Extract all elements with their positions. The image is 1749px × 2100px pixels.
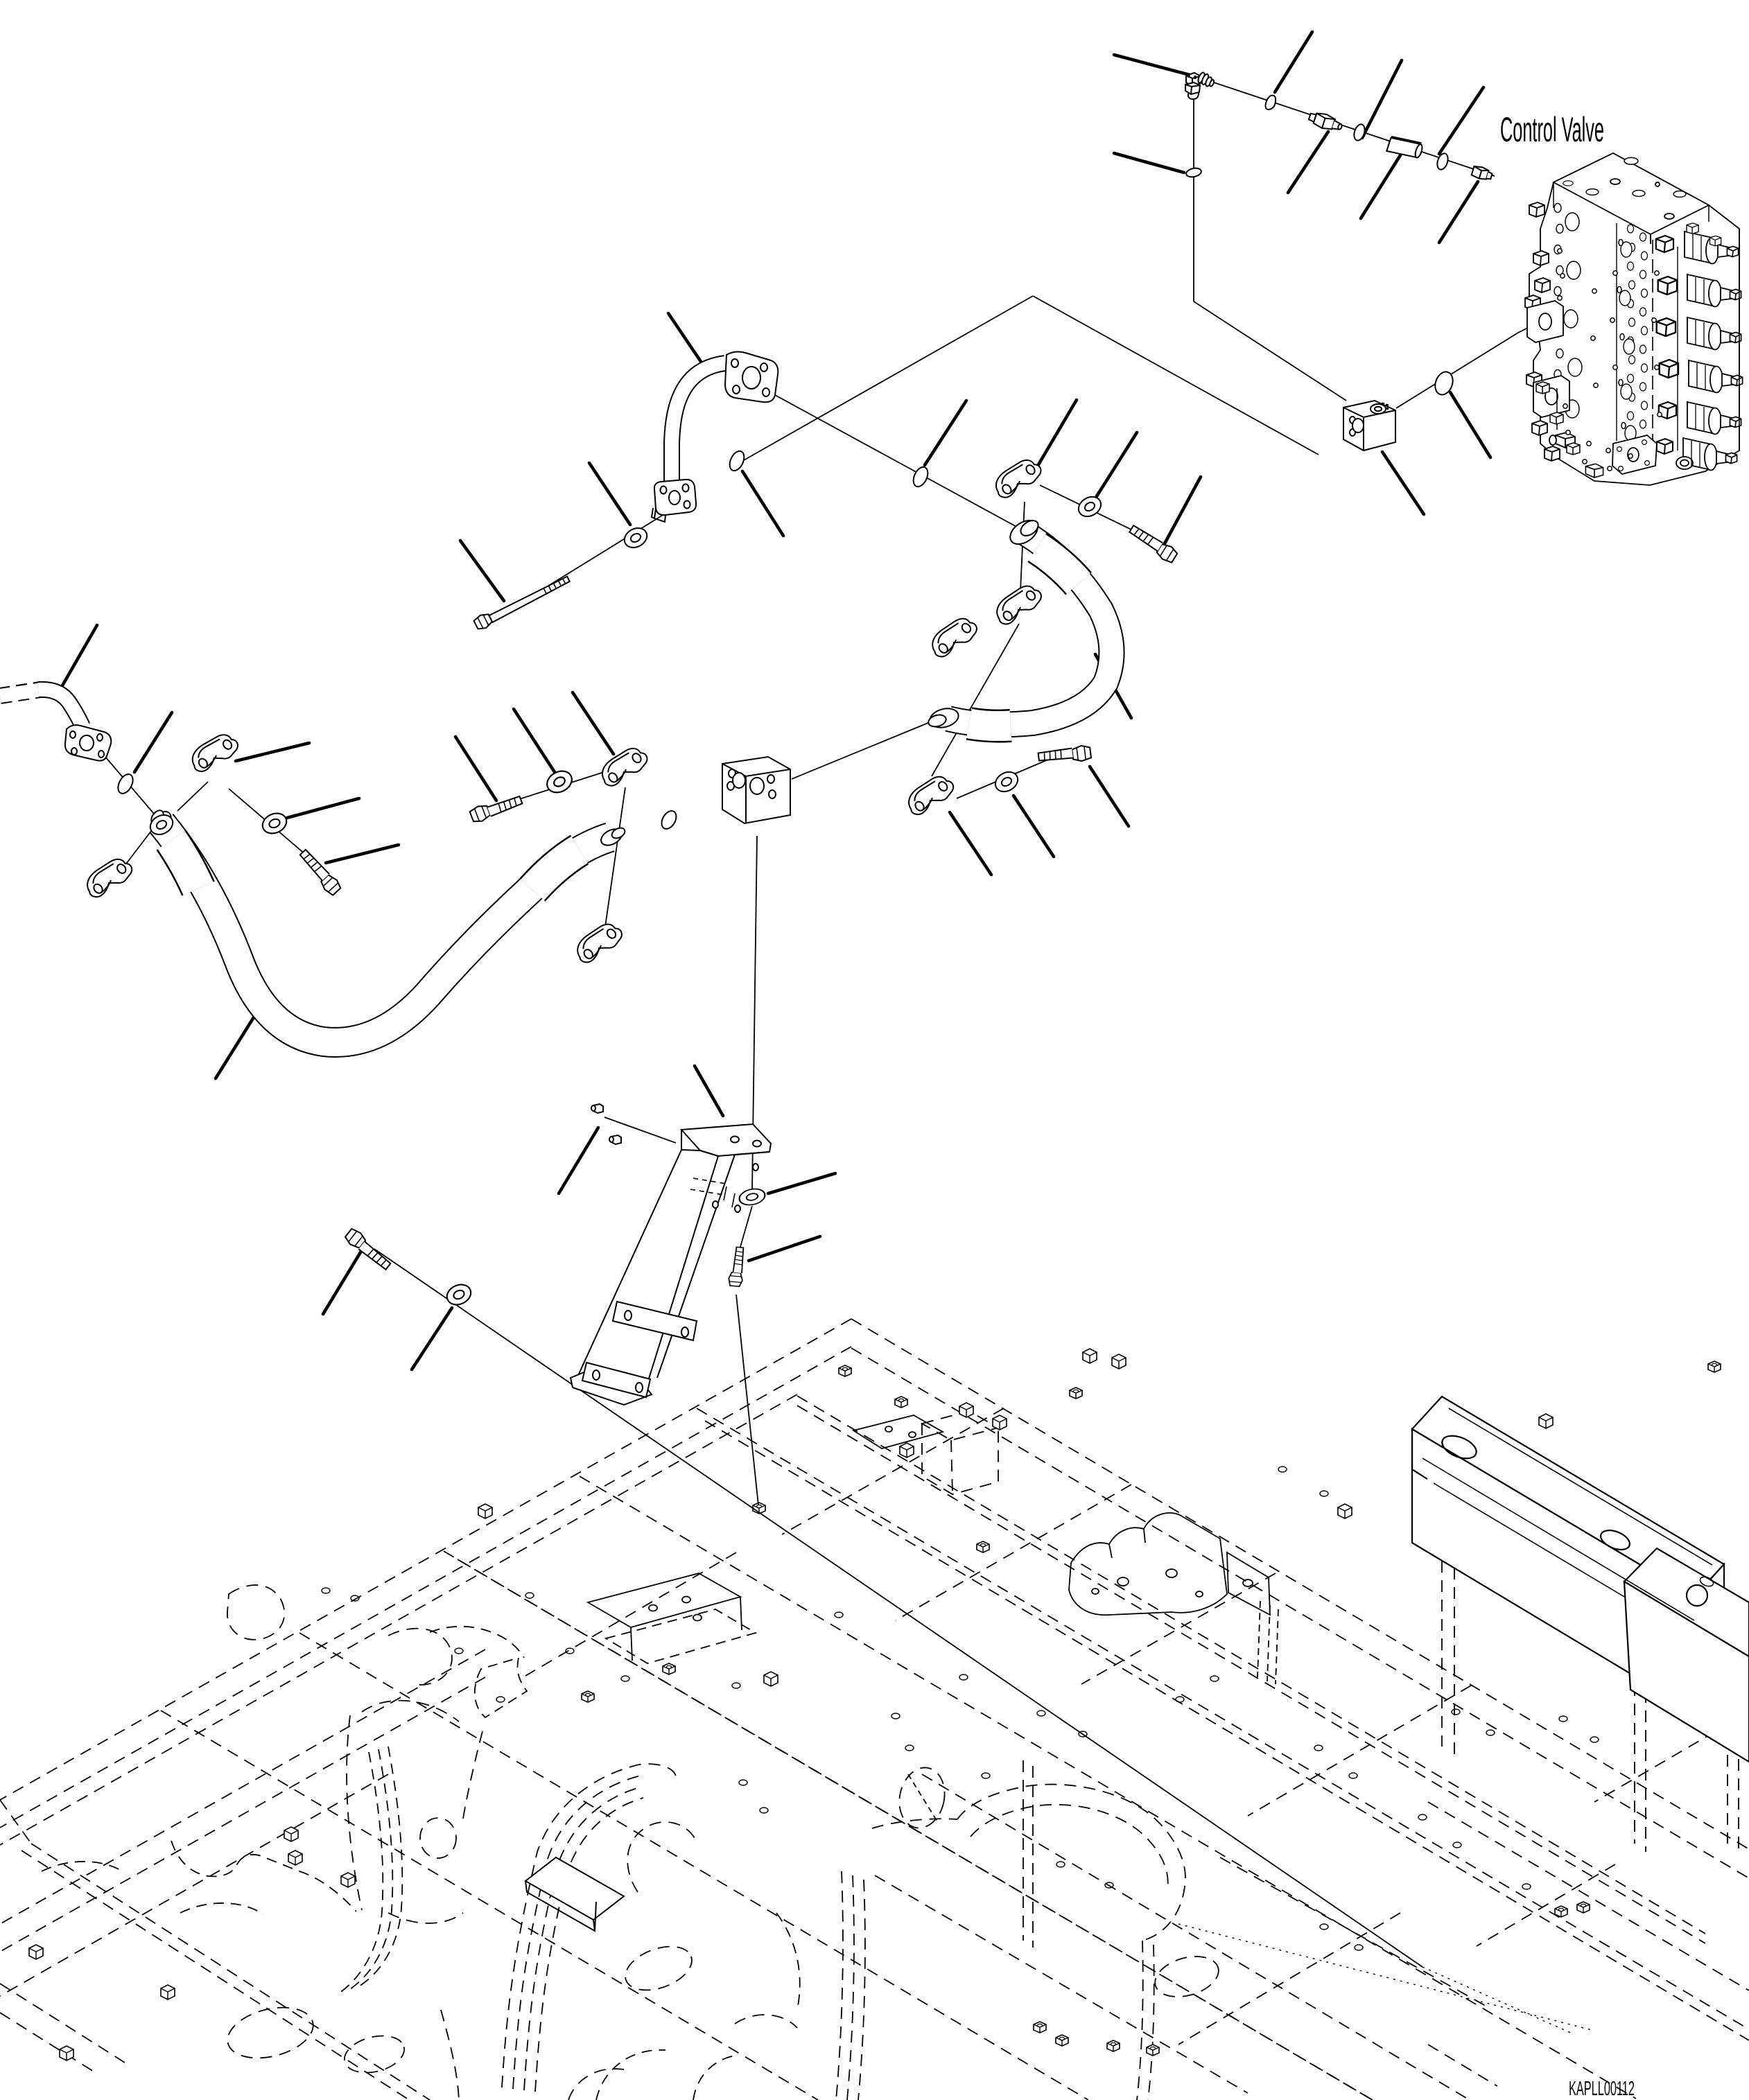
- svg-text:Control Valve: Control Valve: [1500, 110, 1604, 149]
- svg-text:KAPLL00112: KAPLL00112: [1569, 2078, 1635, 2100]
